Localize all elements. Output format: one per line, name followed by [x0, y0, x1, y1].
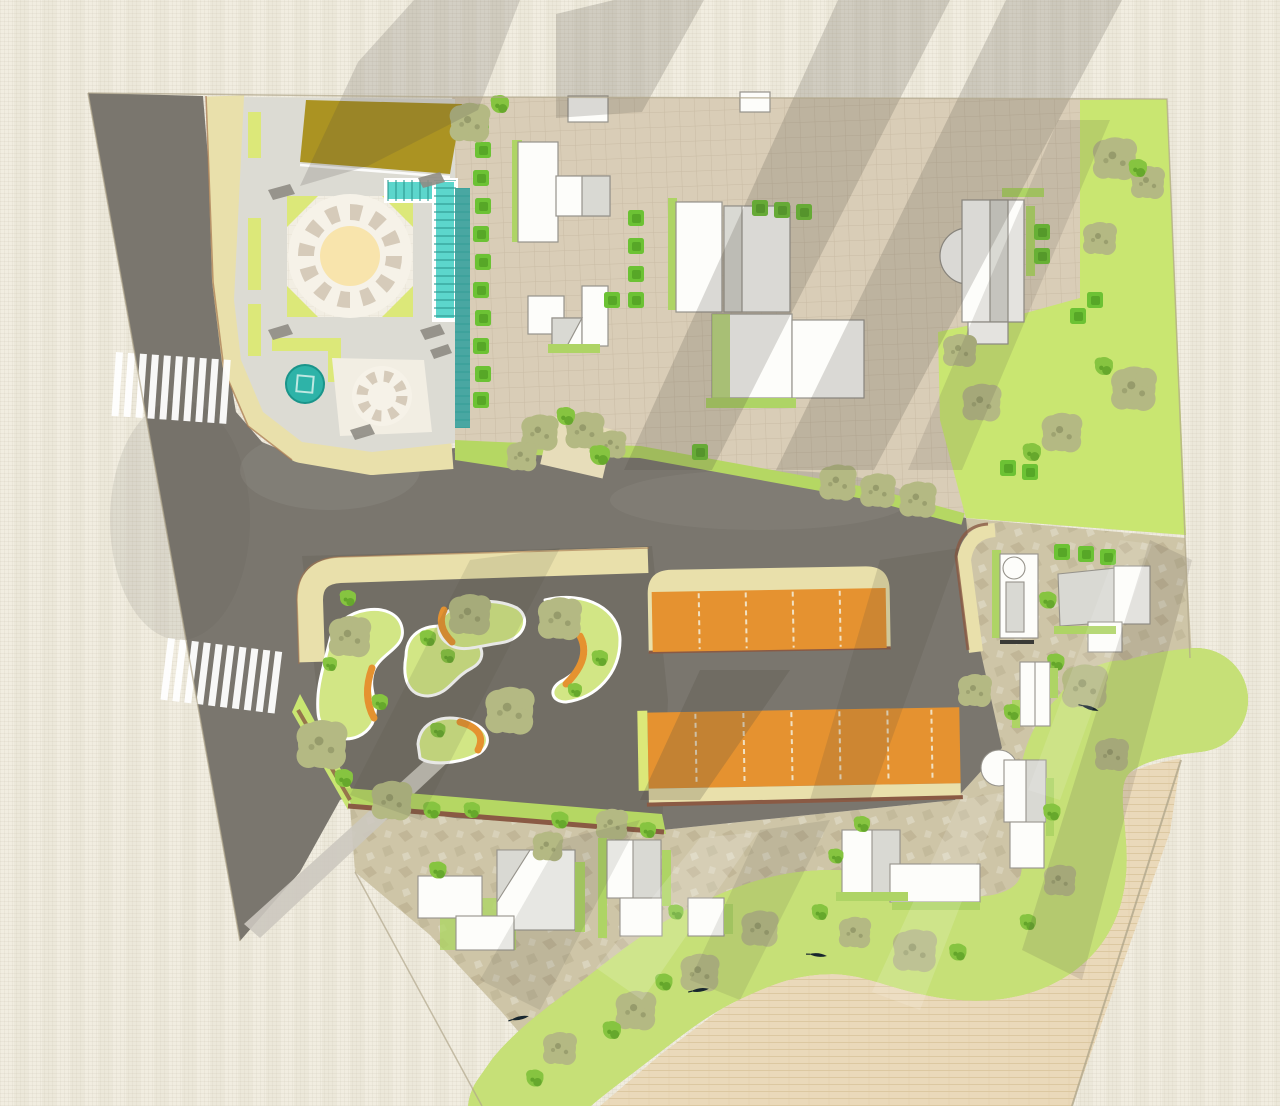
pavilion — [992, 550, 1038, 644]
site-plan-canvas — [0, 0, 1280, 1106]
masterplan-drawing — [0, 0, 1280, 1106]
plaza-small-circle — [332, 358, 432, 436]
plaza-square — [287, 194, 413, 318]
plaza-circle-center — [320, 226, 380, 286]
building-small — [740, 92, 770, 112]
fountain — [286, 365, 324, 403]
